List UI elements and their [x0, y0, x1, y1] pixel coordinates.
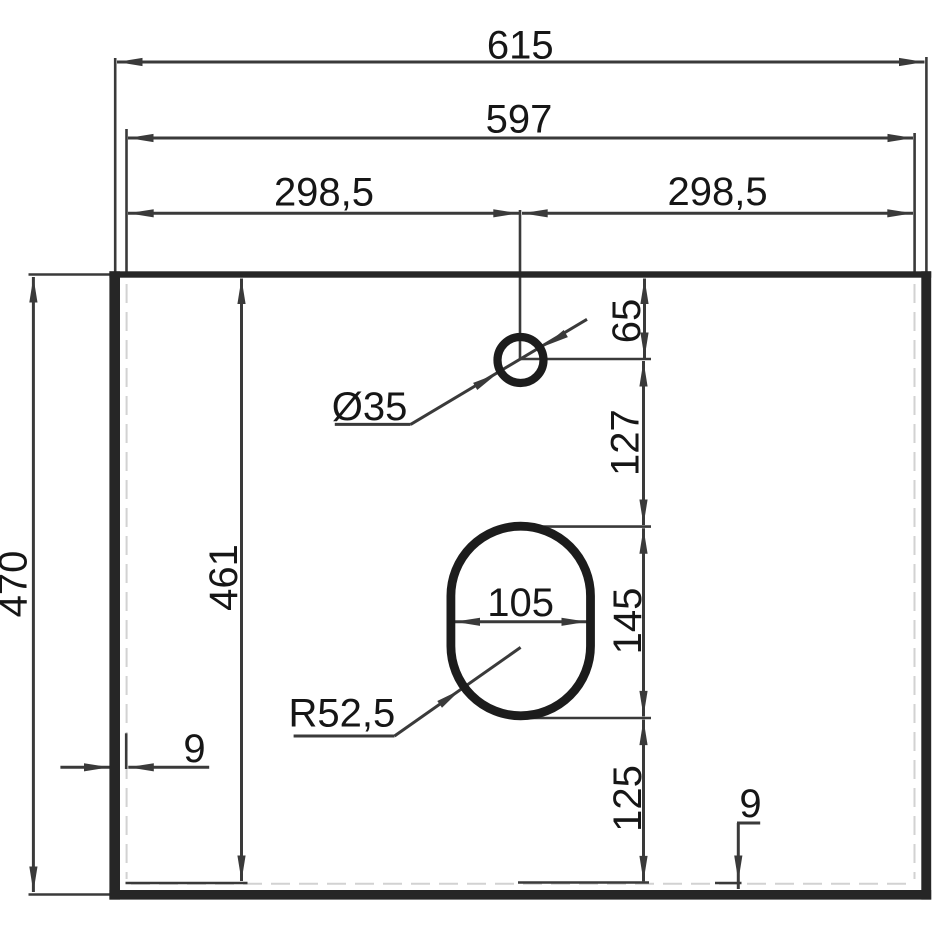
svg-text:298,5: 298,5 — [274, 171, 374, 215]
svg-text:127: 127 — [604, 409, 648, 476]
svg-text:461: 461 — [202, 544, 246, 611]
svg-text:9: 9 — [739, 782, 761, 826]
svg-text:Ø35: Ø35 — [332, 385, 408, 429]
svg-text:298,5: 298,5 — [668, 170, 768, 214]
svg-text:615: 615 — [487, 23, 554, 67]
svg-text:65: 65 — [605, 299, 649, 344]
svg-text:125: 125 — [606, 765, 650, 832]
svg-text:145: 145 — [606, 588, 650, 655]
svg-text:597: 597 — [486, 98, 553, 142]
svg-text:9: 9 — [183, 727, 205, 771]
svg-text:105: 105 — [487, 581, 554, 625]
svg-text:470: 470 — [0, 551, 35, 618]
svg-text:R52,5: R52,5 — [289, 692, 396, 736]
